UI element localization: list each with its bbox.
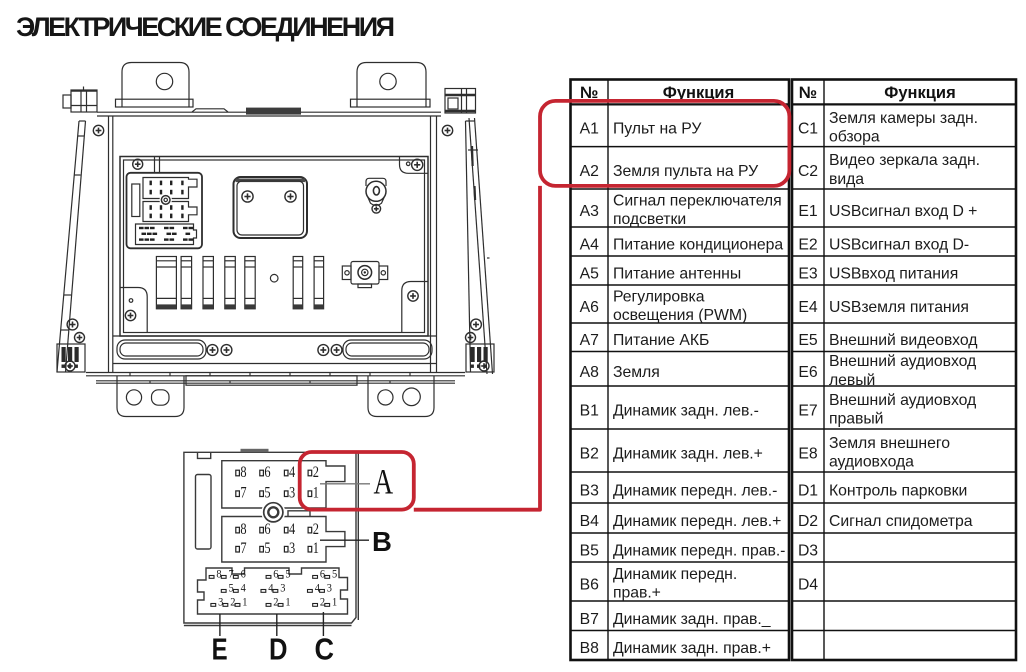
svg-text:А8: А8 [580,364,599,381]
svg-text:3: 3 [280,581,285,595]
svg-text:Е8: Е8 [798,446,817,463]
svg-text:В2: В2 [580,446,599,463]
svg-text:5: 5 [264,485,270,502]
svg-text:В3: В3 [580,483,599,500]
svg-text:левый: левый [829,372,875,389]
svg-text:А2: А2 [580,163,599,180]
svg-text:6: 6 [264,464,270,481]
svg-text:7: 7 [240,485,246,502]
svg-text:5: 5 [285,567,290,581]
svg-text:6: 6 [241,567,246,581]
svg-text:В7: В7 [580,611,599,628]
svg-text:2: 2 [313,464,319,481]
svg-text:USBсигнал вход D-: USBсигнал вход D- [829,237,969,254]
svg-text:Земля: Земля [613,364,660,381]
svg-text:Динамик задн. прав.+: Динамик задн. прав.+ [613,640,771,657]
svg-text:Сигнал переключателя: Сигнал переключателя [613,192,782,209]
svg-text:Питание АКБ: Питание АКБ [613,332,709,349]
svg-text:USBвход питания: USBвход питания [829,266,958,283]
svg-text:USBземля питания: USBземля питания [829,299,969,316]
svg-text:Динамик передн. лев.+: Динамик передн. лев.+ [613,513,781,530]
svg-text:D4: D4 [798,577,818,594]
svg-text:Динамик передн.: Динамик передн. [613,566,737,583]
svg-text:Сигнал спидометра: Сигнал спидометра [829,513,973,530]
svg-text:USBсигнал вход D +: USBсигнал вход D + [829,203,977,220]
svg-text:Функция: Функция [884,84,955,102]
svg-text:D2: D2 [798,513,818,530]
svg-text:2: 2 [313,521,319,538]
svg-text:Земля пульта на РУ: Земля пульта на РУ [613,163,759,180]
svg-text:Земля внешнего: Земля внешнего [829,435,950,452]
svg-text:вида: вида [829,171,864,188]
svg-text:Е3: Е3 [798,266,817,283]
svg-text:Внешний аудиовход: Внешний аудиовход [829,392,976,409]
svg-text:Динамик задн. прав._: Динамик задн. прав._ [613,611,771,628]
svg-text:А4: А4 [580,237,599,254]
svg-text:А1: А1 [580,121,599,138]
svg-text:Е5: Е5 [798,332,817,349]
svg-text:7: 7 [240,540,246,557]
svg-text:E: E [212,632,228,667]
svg-text:Внешний видеовход: Внешний видеовход [829,332,977,349]
svg-text:Динамик передн. лев.-: Динамик передн. лев.- [613,483,777,500]
svg-text:4: 4 [241,581,246,595]
svg-text:B: B [372,526,392,557]
svg-text:D3: D3 [798,543,818,560]
svg-text:3: 3 [327,581,332,595]
svg-text:3: 3 [289,485,295,502]
svg-text:прав.+: прав.+ [613,585,661,602]
svg-text:Внешний аудиовход: Внешний аудиовход [829,353,976,370]
svg-text:D1: D1 [798,483,818,500]
svg-text:Земля камеры задн.: Земля камеры задн. [829,110,978,127]
svg-text:4: 4 [289,521,295,538]
svg-text:1: 1 [332,595,337,609]
svg-text:обзора: обзора [829,129,880,146]
svg-text:3: 3 [289,540,295,557]
svg-text:А3: А3 [580,203,599,220]
svg-text:1: 1 [285,595,290,609]
svg-text:5: 5 [264,540,270,557]
svg-text:Е7: Е7 [798,403,817,420]
svg-text:1: 1 [313,485,319,502]
svg-text:В8: В8 [580,640,599,657]
svg-text:Контроль парковки: Контроль парковки [829,483,967,500]
svg-text:Динамик задн. лев.-: Динамик задн. лев.- [613,403,759,420]
svg-text:правый: правый [829,411,883,428]
svg-text:Видео зеркала задн.: Видео зеркала задн. [829,152,980,169]
svg-text:В5: В5 [580,543,599,560]
svg-text:C: C [315,632,335,667]
svg-text:В4: В4 [580,513,599,530]
svg-text:5: 5 [332,567,337,581]
svg-text:Питание антенны: Питание антенны [613,266,741,283]
svg-text:Динамик передн. прав.-: Динамик передн. прав.- [613,543,785,560]
svg-text:Е2: Е2 [798,237,817,254]
svg-text:освещения (PWM): освещения (PWM) [613,307,747,324]
svg-text:D: D [269,632,288,667]
svg-text:Е1: Е1 [798,203,817,220]
svg-text:В1: В1 [580,403,599,420]
svg-text:Е6: Е6 [798,364,817,381]
svg-text:В6: В6 [580,577,599,594]
svg-text:8: 8 [240,521,246,538]
svg-text:1: 1 [242,595,247,609]
svg-text:Е4: Е4 [798,299,817,316]
svg-text:С2: С2 [798,163,818,180]
svg-text:4: 4 [289,464,295,481]
svg-text:Пульт на РУ: Пульт на РУ [613,121,702,138]
svg-text:1: 1 [313,540,319,557]
svg-text:Динамик задн. лев.+: Динамик задн. лев.+ [613,446,763,463]
svg-text:Питание кондиционера: Питание кондиционера [613,237,783,254]
svg-text:8: 8 [240,464,246,481]
svg-text:ЭЛЕКТРИЧЕСКИЕ СОЕДИНЕНИЯ: ЭЛЕКТРИЧЕСКИЕ СОЕДИНЕНИЯ [16,12,395,42]
svg-text:аудиовхода: аудиовхода [829,454,914,471]
svg-text:6: 6 [264,521,270,538]
svg-text:Регулировка: Регулировка [613,288,705,305]
svg-text:А5: А5 [580,266,599,283]
svg-text:подсветки: подсветки [613,211,686,228]
svg-text:№: № [799,84,817,102]
svg-text:A: A [374,462,394,502]
svg-text:А6: А6 [580,299,599,316]
svg-text:А7: А7 [580,332,599,349]
svg-text:С1: С1 [798,121,818,138]
